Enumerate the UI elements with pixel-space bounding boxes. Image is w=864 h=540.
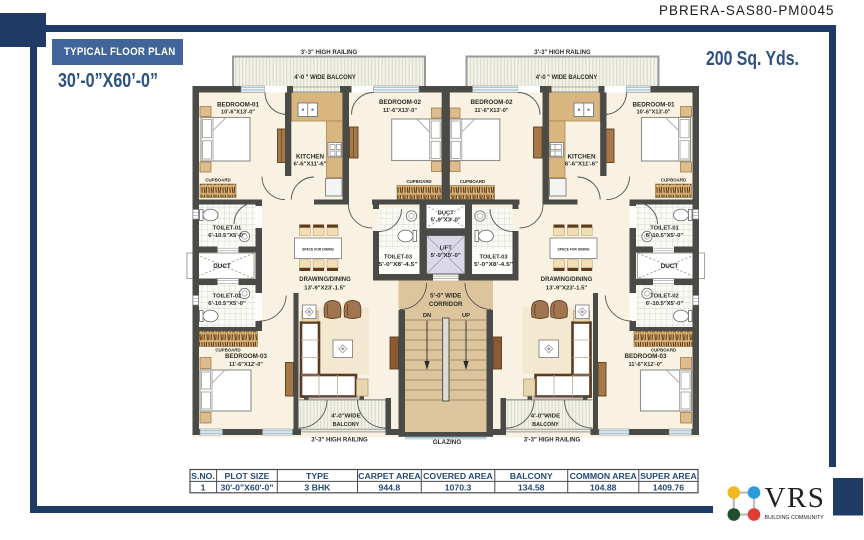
- svg-text:134.58: 134.58: [518, 482, 545, 492]
- svg-text:VRS: VRS: [765, 482, 826, 514]
- svg-text:PLOT SIZE: PLOT SIZE: [225, 471, 270, 481]
- svg-text:1: 1: [201, 482, 206, 492]
- svg-text:TYPE: TYPE: [306, 471, 329, 481]
- svg-text:30'-0"X60'-0": 30'-0"X60'-0": [221, 482, 274, 492]
- svg-text:CARPET AREA: CARPET AREA: [358, 471, 421, 481]
- svg-text:BUILDING COMMUNITY: BUILDING COMMUNITY: [765, 515, 825, 521]
- svg-text:1409.76: 1409.76: [653, 482, 685, 492]
- svg-text:SUPER AREA: SUPER AREA: [640, 471, 697, 481]
- svg-text:1070.3: 1070.3: [445, 482, 472, 492]
- svg-text:COMMON AREA: COMMON AREA: [570, 471, 638, 481]
- svg-text:3 BHK: 3 BHK: [304, 482, 331, 492]
- svg-text:944.8: 944.8: [379, 482, 401, 492]
- svg-text:S.NO.: S.NO.: [191, 471, 215, 481]
- svg-text:BALCONY: BALCONY: [510, 471, 553, 481]
- svg-text:104.88: 104.88: [590, 482, 617, 492]
- svg-text:COVERED AREA: COVERED AREA: [423, 471, 493, 481]
